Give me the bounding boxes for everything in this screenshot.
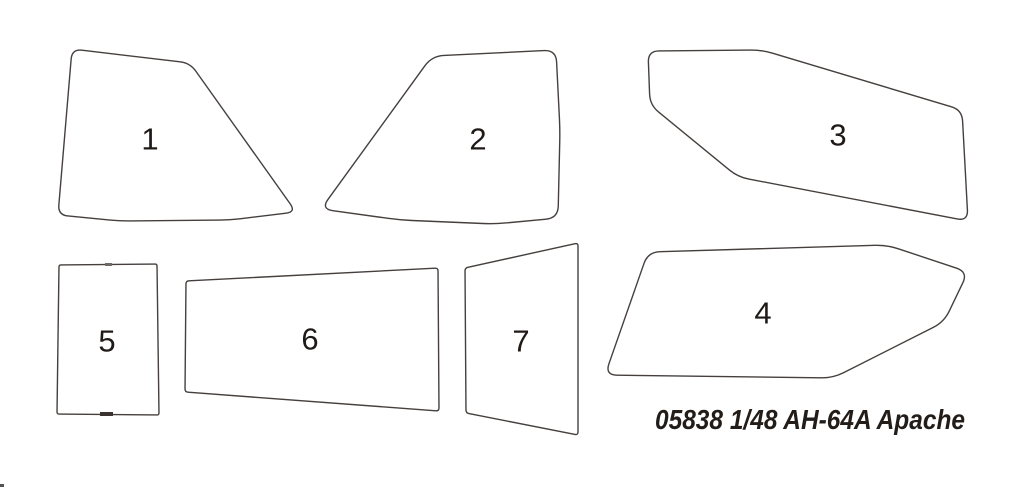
part-1-number-label: 1 bbox=[141, 122, 158, 157]
parts-layer: 1234567 bbox=[57, 50, 967, 434]
part-6-number-label: 6 bbox=[301, 322, 318, 357]
gate-mark-top bbox=[105, 263, 112, 266]
part-1-outline bbox=[59, 50, 293, 221]
kit-caption: 05838 1/48 AH-64A Apache bbox=[655, 404, 965, 435]
parts-diagram-svg: 1234567 05838 1/48 AH-64A Apache bbox=[0, 0, 1024, 489]
part-7-number-label: 7 bbox=[512, 324, 529, 359]
parts-diagram-page: 1234567 05838 1/48 AH-64A Apache bbox=[0, 0, 1024, 489]
part-3-number-label: 3 bbox=[829, 118, 846, 153]
stray-mark bbox=[0, 484, 4, 487]
part-2-outline bbox=[325, 51, 559, 224]
gate-mark-bottom bbox=[100, 412, 113, 416]
part-5-number-label: 5 bbox=[98, 324, 115, 359]
part-2-number-label: 2 bbox=[469, 122, 486, 157]
part-4-number-label: 4 bbox=[754, 296, 771, 331]
part-4-outline bbox=[608, 245, 964, 378]
part-3-outline bbox=[648, 50, 967, 219]
